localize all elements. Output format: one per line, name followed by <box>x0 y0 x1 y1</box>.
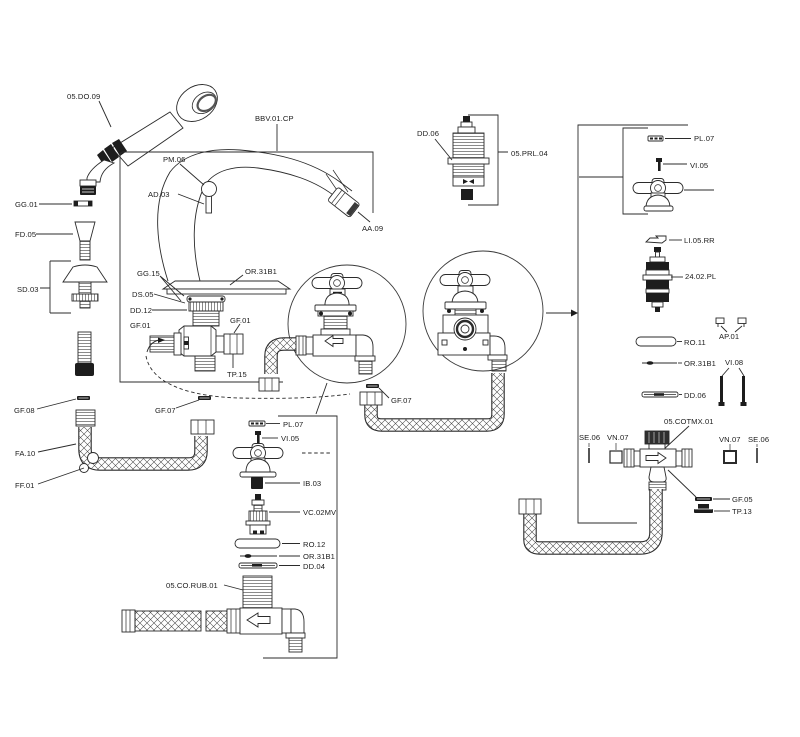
parts-diagram-canvas: 05.DO.09 GG.01 FD.05 SD.03 GF.08 <box>0 0 800 737</box>
li05rr-lever <box>646 236 666 243</box>
spout-inner-curve <box>194 167 344 281</box>
label-dd12: DD.12 <box>130 306 152 315</box>
vi05-screw <box>255 431 261 435</box>
gf01-nut <box>224 334 243 354</box>
label-gg15: GG.15 <box>137 269 160 278</box>
braided-hose <box>206 611 227 631</box>
braided-hose <box>135 611 201 631</box>
mixer-valve <box>624 431 692 490</box>
arrow-icon <box>571 310 578 317</box>
label-vc02mv: VC.02MV <box>303 508 337 517</box>
fd05-stem <box>80 241 90 260</box>
handshower-assembly: 05.DO.09 <box>67 77 224 195</box>
label-dd04: DD.04 <box>303 562 325 571</box>
label-05-cotmx-01: 05.COTMX.01 <box>664 417 714 426</box>
handshower-elbow <box>87 160 114 182</box>
label-05-prl-04: 05.PRL.04 <box>511 149 548 158</box>
ds05-ring <box>187 296 225 302</box>
threaded-rod <box>78 332 91 363</box>
label-ad03: AD.03 <box>148 190 170 199</box>
vi05-screw <box>656 158 662 162</box>
right-top-group: PL.07 VI.05 <box>579 128 714 214</box>
label-ap01: AP.01 <box>719 332 739 341</box>
label-pl07: PL.07 <box>283 420 303 429</box>
label-ro11: RO.11 <box>684 338 706 347</box>
hose-nut <box>519 499 541 514</box>
label-gg01: GG.01 <box>15 200 38 209</box>
pm06-knob <box>202 182 217 197</box>
hose-nut <box>122 610 135 632</box>
spout-flange <box>163 281 290 289</box>
label-05-do-09: 05.DO.09 <box>67 92 100 101</box>
label-ro12: RO.12 <box>303 540 325 549</box>
diverter-valve <box>438 271 507 372</box>
label-pl07: PL.07 <box>694 134 714 143</box>
vi08-screws <box>719 368 747 406</box>
cartridge-base <box>461 189 473 200</box>
ro12-ring <box>235 539 280 548</box>
mixer-valve-group: 05.COTMX.01 SE.06 VN.07 VN.07 SE.06 <box>519 417 769 548</box>
cartridge-stem <box>463 116 470 122</box>
label-gf08: GF.08 <box>14 406 35 415</box>
label-or31b1: OR.31B1 <box>303 552 335 561</box>
label-tp15: TP.15 <box>227 370 247 379</box>
left-hose-assembly: FA.10 FF.01 GF.07 <box>15 396 214 490</box>
sd03-escutcheon <box>63 265 107 282</box>
label-li05rr: LI.05.RR <box>684 236 715 245</box>
cartridge-flange <box>448 158 489 164</box>
label-sd03: SD.03 <box>17 285 39 294</box>
label-or31b1: OR.31B1 <box>245 267 277 276</box>
label-vn07: VN.07 <box>607 433 629 442</box>
cross-handle <box>233 444 283 478</box>
label-gf01: GF.01 <box>130 321 151 330</box>
ib03-part <box>251 477 263 489</box>
dd12-nut <box>189 302 223 311</box>
hose-nut <box>360 392 382 405</box>
label-05-co-rub-01: 05.CO.RUB.01 <box>166 581 218 590</box>
label-pm06: PM.06 <box>163 155 185 164</box>
label-dd06: DD.06 <box>417 129 439 138</box>
label-ff01: FF.01 <box>15 481 35 490</box>
union-valve <box>296 274 375 375</box>
bottom-valve-assembly: 05.CO.RUB.01 <box>122 576 305 652</box>
reference-dashed-line <box>146 356 350 398</box>
label-vi08: VI.08 <box>725 358 743 367</box>
label-se06: SE.06 <box>748 435 769 444</box>
fd05-cone <box>75 222 95 241</box>
label-vi05: VI.05 <box>690 161 708 170</box>
label-or31b1: OR.31B1 <box>684 359 716 368</box>
label-vn07: VN.07 <box>719 435 741 444</box>
vn07-part <box>610 451 622 463</box>
label-ds05: DS.05 <box>132 290 154 299</box>
vc02mv-cartridge <box>246 494 270 534</box>
label-dd06: DD.06 <box>684 391 706 400</box>
rod-nut <box>75 363 94 376</box>
cross-handle <box>633 179 683 212</box>
vn07-part <box>724 451 736 463</box>
left-column-parts: GG.01 FD.05 SD.03 GF.08 <box>14 200 107 415</box>
2402pl-cartridge <box>643 247 672 312</box>
handshower-outlet <box>80 186 96 195</box>
label-gf07: GF.07 <box>391 396 412 405</box>
label-2402pl: 24.02.PL <box>685 272 716 281</box>
label-gf05: GF.05 <box>732 495 753 504</box>
cartridge-body <box>453 133 484 158</box>
ap01-clips <box>716 318 746 332</box>
hose-shank <box>76 410 95 426</box>
label-fd05: FD.05 <box>15 230 36 239</box>
tp13-cap <box>698 504 709 509</box>
valve-shank <box>195 356 215 371</box>
bottom-parts-column: PL.07 VI.05 IB.03 VC.02MV RO.12 <box>233 420 337 571</box>
label-se06: SE.06 <box>579 433 600 442</box>
label-bbv01cp: BBV.01.CP <box>255 114 294 123</box>
ad03-rod <box>206 196 212 213</box>
spout-outer-curve <box>158 150 352 281</box>
label-gf07: GF.07 <box>155 406 176 415</box>
ro11-ring <box>636 337 676 346</box>
label-gf01: GF.01 <box>230 316 251 325</box>
exploded-diagram: 05.DO.09 GG.01 FD.05 SD.03 GF.08 <box>0 0 800 737</box>
washer <box>216 336 224 352</box>
valve-shank <box>243 576 272 608</box>
middle-hose <box>360 373 498 425</box>
handshower-collar <box>80 180 96 186</box>
swivel-joint <box>88 453 99 464</box>
right-parts-column: LI.05.RR 24.02.PL AP.01 RO.11 OR.31B <box>636 236 747 406</box>
label-vi05: VI.05 <box>281 434 299 443</box>
label-ib03: IB.03 <box>303 479 321 488</box>
hose-nut <box>259 378 279 391</box>
elbow <box>291 609 304 633</box>
label-tp13: TP.13 <box>732 507 752 516</box>
label-aa09: AA.09 <box>362 224 383 233</box>
prl04-cartridge-group: 05.PRL.04 DD.06 <box>417 115 548 205</box>
left-nipple <box>150 336 176 352</box>
detail-circle-2 <box>423 251 543 371</box>
hose-nut <box>191 420 214 434</box>
spout-aerator <box>328 187 361 218</box>
label-fa10: FA.10 <box>15 449 35 458</box>
